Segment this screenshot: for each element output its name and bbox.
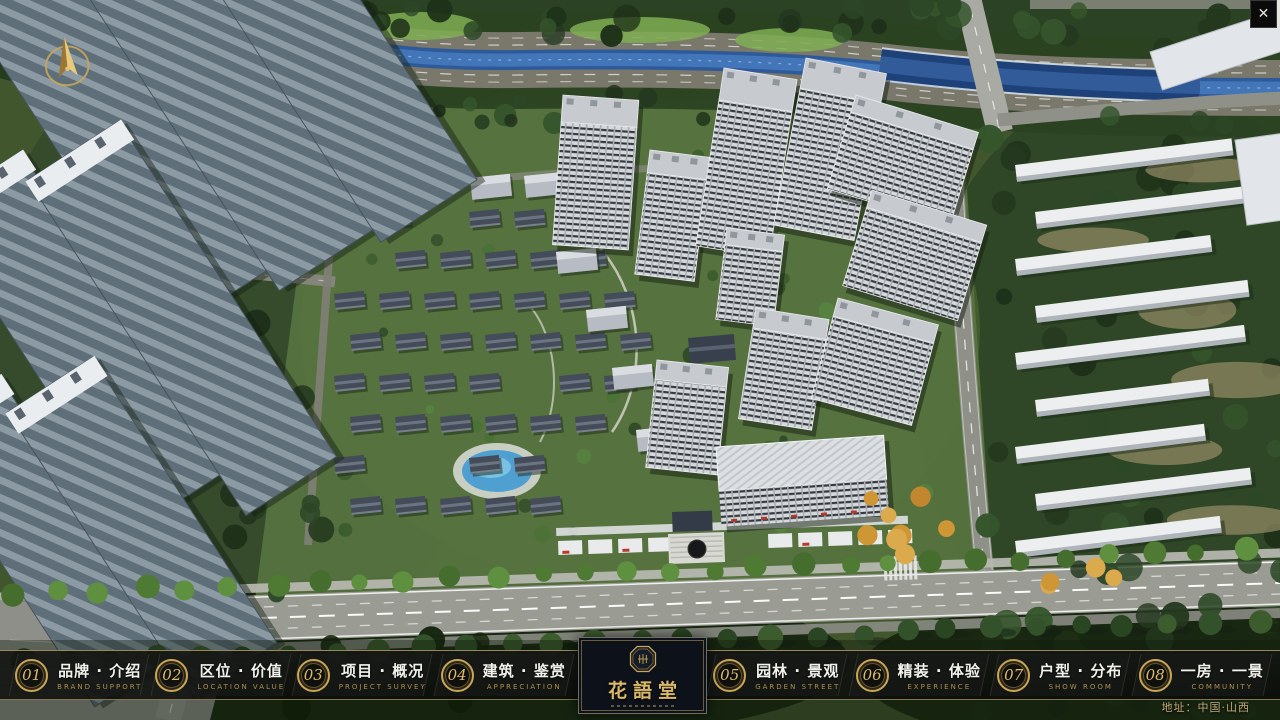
nav-item-subtitle: LOCATION VALUE [197,683,285,691]
nav-number-badge: 01 [15,659,48,692]
nav-item-subtitle: GARDEN STREET [755,683,840,691]
nav-item-subtitle: BRAND SUPPORT [57,683,142,691]
nav-item-title: 精装 · 体验 [898,660,981,681]
nav-number-badge: 02 [155,659,188,692]
nav-item-text: 项目 · 概况 PROJECT SURVEY [339,660,427,691]
nav-item-text: 户型 · 分布 SHOW ROOM [1039,660,1122,691]
nav-item-text: 建筑 · 鉴赏 APPRECIATION [483,660,566,691]
seal-icon [628,644,658,674]
nav-item-brand-intro[interactable]: 01 品牌 · 介绍 BRAND SUPPORT [8,651,150,699]
nav-group-right: 05 园林 · 景观 GARDEN STREET 06 精装 · 体验 EXPE… [706,651,1280,699]
logo-subtitle-decoration [611,705,675,707]
nav-item-title: 户型 · 分布 [1039,660,1122,681]
project-address: 地址：中国·山西 [1162,699,1251,715]
project-logo-title: 花語堂 [602,676,683,703]
nav-item-location-value[interactable]: 02 区位 · 价值 LOCATION VALUE [150,651,292,699]
nav-item-text: 区位 · 价值 LOCATION VALUE [197,660,285,691]
nav-item-subtitle: EXPERIENCE [907,683,971,691]
nav-item-title: 品牌 · 介绍 [58,660,141,681]
nav-item-title: 一房 · 一景 [1181,660,1264,681]
close-icon: ✕ [1258,6,1270,22]
nav-item-project-overview[interactable]: 03 项目 · 概况 PROJECT SURVEY [291,651,433,699]
nav-number-badge: 06 [856,659,889,692]
nav-item-subtitle: PROJECT SURVEY [339,683,427,691]
nav-group-left: 01 品牌 · 介绍 BRAND SUPPORT 02 区位 · 价值 LOCA… [0,651,574,699]
close-button[interactable]: ✕ [1250,0,1277,28]
nav-number-badge: 05 [713,659,746,692]
nav-item-floorplan-distribution[interactable]: 07 户型 · 分布 SHOW ROOM [989,651,1131,699]
nav-item-interior-experience[interactable]: 06 精装 · 体验 EXPERIENCE [848,651,990,699]
compass-icon [36,28,98,96]
nav-number-badge: 08 [1139,659,1172,692]
nav-number-badge: 07 [997,659,1030,692]
nav-item-room-view[interactable]: 08 一房 · 一景 COMMUNITY [1131,651,1273,699]
nav-item-text: 园林 · 景观 GARDEN STREET [755,660,840,691]
nav-item-title: 区位 · 价值 [200,660,283,681]
nav-number-badge: 03 [297,659,330,692]
nav-item-garden-landscape[interactable]: 05 园林 · 景观 GARDEN STREET [706,651,848,699]
nav-item-title: 项目 · 概况 [341,660,424,681]
nav-item-text: 精装 · 体验 EXPERIENCE [898,660,981,691]
nav-item-text: 品牌 · 介绍 BRAND SUPPORT [57,660,142,691]
nav-item-architecture[interactable]: 04 建筑 · 鉴赏 APPRECIATION [433,651,575,699]
nav-number-badge: 04 [441,659,474,692]
app-window: ✕ 01 品牌 · 介绍 BRAND SUPPORT 02 区位 · 价值 LO… [0,0,1280,720]
nav-item-subtitle: APPRECIATION [487,683,562,691]
nav-item-text: 一房 · 一景 COMMUNITY [1181,660,1264,691]
nav-item-subtitle: SHOW ROOM [1049,683,1113,691]
nav-item-subtitle: COMMUNITY [1192,683,1253,691]
masterplan-render [0,0,1280,720]
nav-item-title: 建筑 · 鉴赏 [483,660,566,681]
nav-item-title: 园林 · 景观 [756,660,839,681]
project-logo[interactable]: 花語堂 [578,637,707,714]
